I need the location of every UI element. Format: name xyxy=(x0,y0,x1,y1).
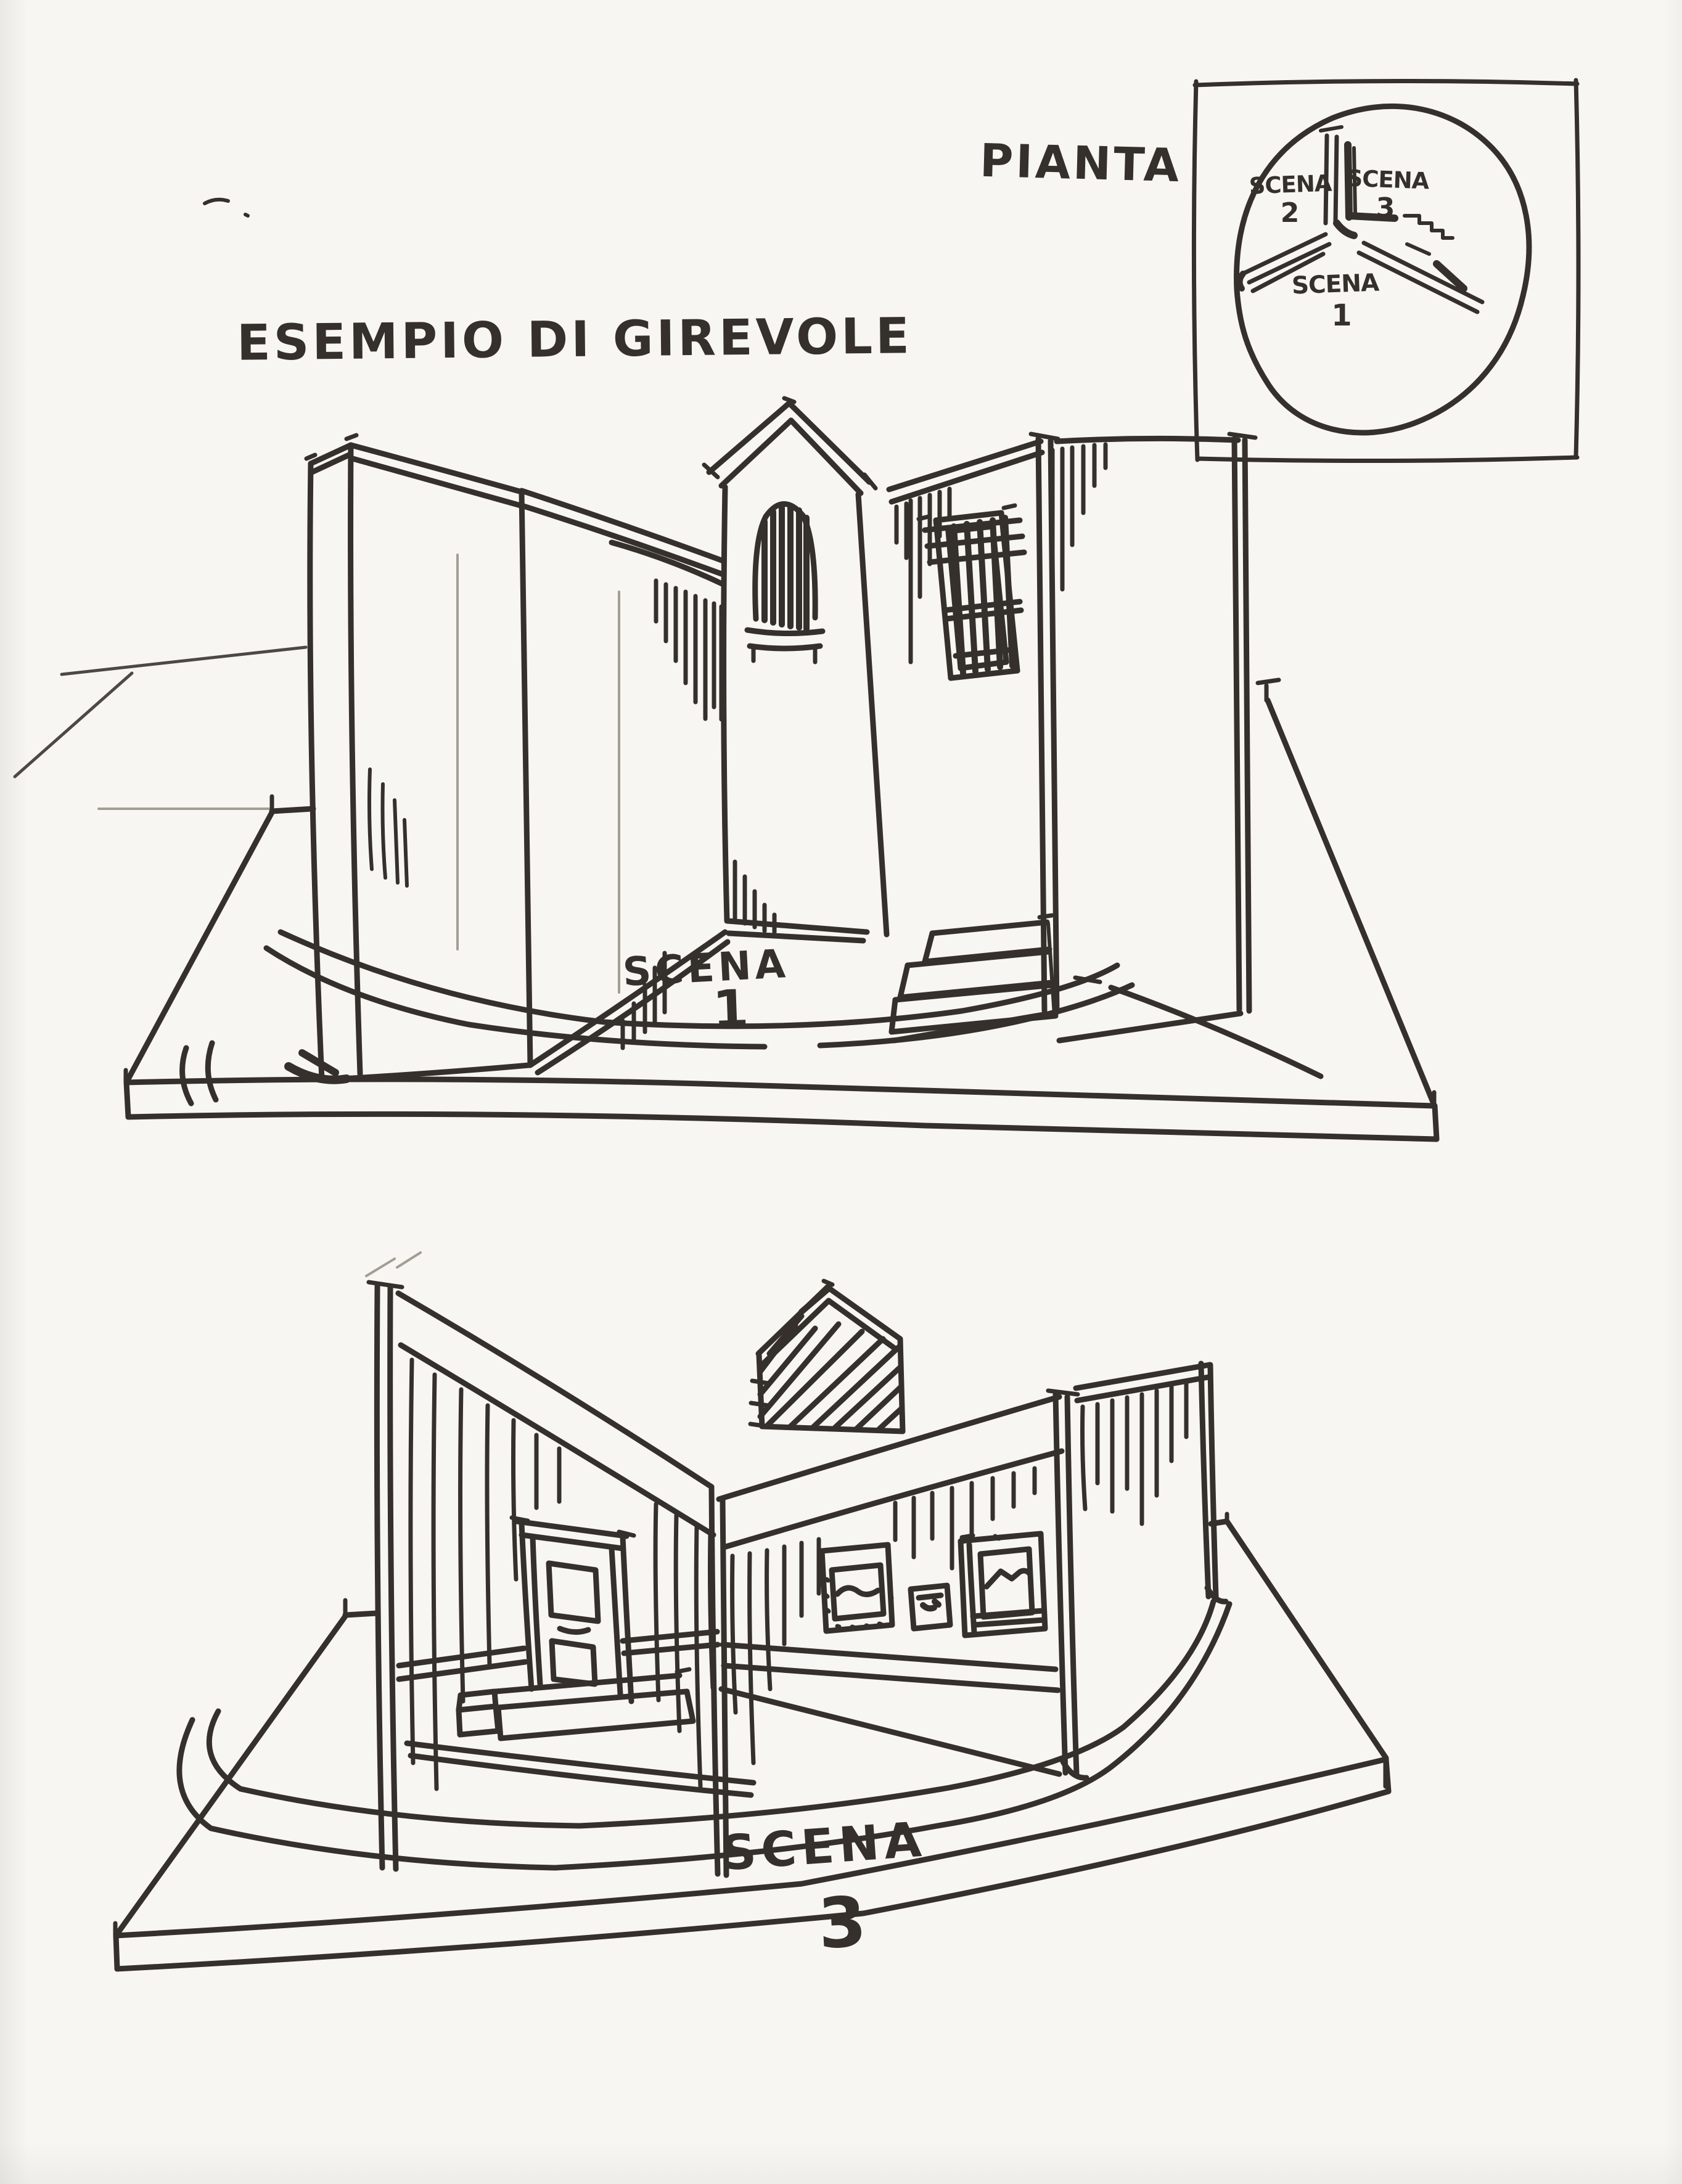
plan-wall-lower-right xyxy=(1359,216,1482,312)
plan-inset: PIANTA xyxy=(979,80,1578,461)
rear-panel-hatch xyxy=(1083,1384,1187,1524)
interior-left-wall xyxy=(366,1253,726,1875)
picture-frame-dotted xyxy=(822,1545,892,1631)
scene1-word: SCENA xyxy=(622,941,790,996)
side-wall-hanging-hatch xyxy=(1052,444,1106,634)
sketch-scene3: SCENA 3 xyxy=(115,1253,1389,1969)
plan-scene1-word: SCENA xyxy=(1291,269,1379,300)
sketch-canvas: ESEMPIO DI GIREVOLE PIANTA xyxy=(0,0,1682,2184)
scene1-number: 1 xyxy=(712,978,750,1040)
tower-roof-gable-hatched xyxy=(750,1281,903,1431)
plan-scene2-number: 2 xyxy=(1281,197,1300,229)
plan-scene1-number: 1 xyxy=(1331,298,1352,333)
interior-right-wall xyxy=(719,1391,1086,1778)
arched-window xyxy=(747,504,823,662)
tower-flat xyxy=(704,398,887,941)
scene3-number: 3 xyxy=(816,1882,869,1965)
door-upper-panel xyxy=(549,1563,598,1621)
plan-scene3-word: SCENA xyxy=(1346,165,1430,195)
middle-wall-hanging-hatch xyxy=(656,581,721,719)
scene3-word: SCENA xyxy=(720,1812,928,1882)
barred-window xyxy=(919,505,1024,678)
plan-scene2-word: SCENA xyxy=(1249,170,1332,200)
right-wall-flat xyxy=(889,434,1058,1041)
plan-label: PIANTA xyxy=(979,134,1182,193)
page-title: ESEMPIO DI GIREVOLE xyxy=(237,307,913,371)
picture-zigzag-art xyxy=(987,1571,1030,1587)
gable-diagonal-hatch xyxy=(760,1290,901,1430)
plan-sector-labels: SCENA 2 SCENA 3 SCENA 1 xyxy=(1249,165,1430,333)
rear-return-panel xyxy=(1076,1364,1226,1601)
interior-door xyxy=(512,1518,634,1701)
side-wall-return-flat xyxy=(1052,434,1255,1041)
picture-frame-small xyxy=(911,1585,950,1629)
left-wall-baseboard xyxy=(399,1632,718,1679)
left-wall-hatching xyxy=(369,769,407,886)
title-text: ESEMPIO DI GIREVOLE xyxy=(237,307,913,371)
plan-scene3-number: 3 xyxy=(1376,192,1395,224)
picture-frame-large xyxy=(961,1534,1045,1635)
door-handle xyxy=(560,1629,588,1632)
door-lower-panel xyxy=(552,1641,595,1684)
plan-steps-symbol xyxy=(1405,216,1453,238)
scanned-sketch-page: ESEMPIO DI GIREVOLE PIANTA xyxy=(0,0,1682,2184)
